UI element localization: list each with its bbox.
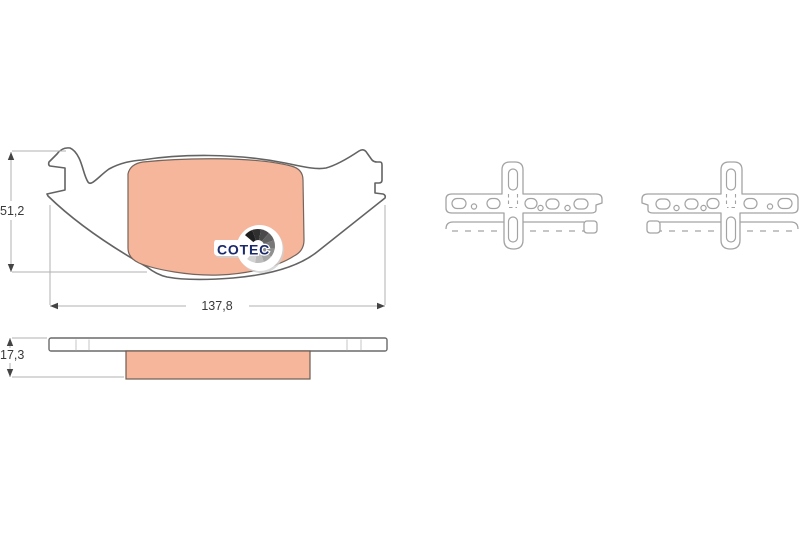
arrow-right-icon bbox=[377, 303, 385, 309]
front-view-pad: COTEC bbox=[47, 148, 385, 280]
accessory-clip-left bbox=[446, 162, 602, 249]
side-friction-material bbox=[126, 351, 310, 379]
arrow-up-icon bbox=[8, 152, 14, 160]
brake-pad-drawing-canvas: COTEC 51,2 137,8 bbox=[0, 0, 800, 533]
technical-drawing: COTEC 51,2 137,8 bbox=[0, 0, 800, 533]
side-view-pad bbox=[49, 338, 387, 379]
arrow-down-icon bbox=[7, 369, 13, 377]
side-backing-plate bbox=[49, 338, 387, 351]
logo-text: COTEC bbox=[217, 242, 270, 258]
width-label: 137,8 bbox=[201, 299, 232, 313]
thickness-label: 17,3 bbox=[0, 348, 24, 362]
height-label: 51,2 bbox=[0, 204, 24, 218]
arrow-down-icon bbox=[8, 264, 14, 272]
arrow-up-icon bbox=[7, 338, 13, 346]
arrow-left-icon bbox=[50, 303, 58, 309]
accessory-clip-right bbox=[642, 162, 798, 249]
